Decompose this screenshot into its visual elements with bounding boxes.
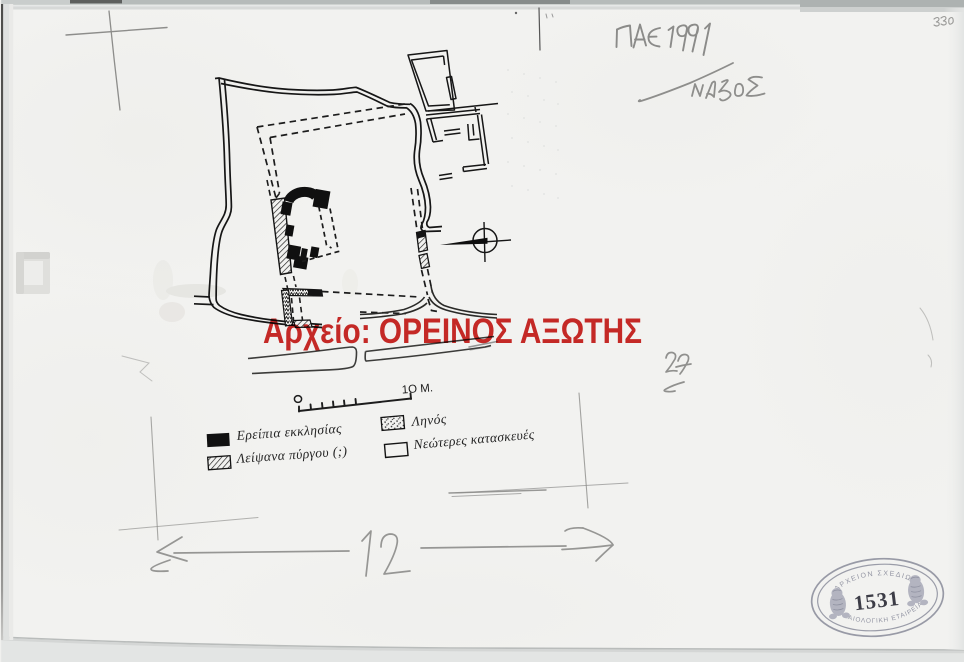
svg-text:Αρχείο: ΟΡΕΙΝΟΣ ΑΞΩΤΗΣ: Αρχείο: ΟΡΕΙΝΟΣ ΑΞΩΤΗΣ: [263, 311, 642, 351]
svg-text:1O M.: 1O M.: [401, 382, 433, 396]
